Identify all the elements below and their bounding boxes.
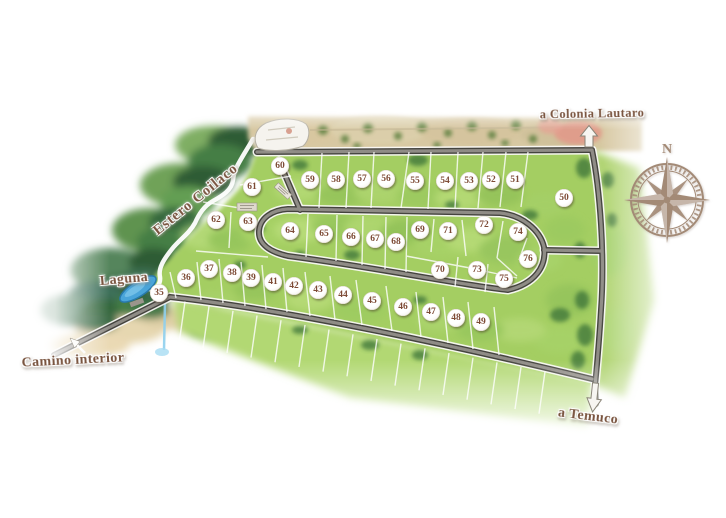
subdivision-map: Estero Coilaco Laguna Camino interior a …	[0, 0, 726, 518]
compass-north-letter: N	[662, 142, 672, 157]
small-sign-lot63	[237, 203, 257, 211]
compass-rose: N	[612, 138, 722, 258]
terrain-artwork	[0, 0, 726, 518]
